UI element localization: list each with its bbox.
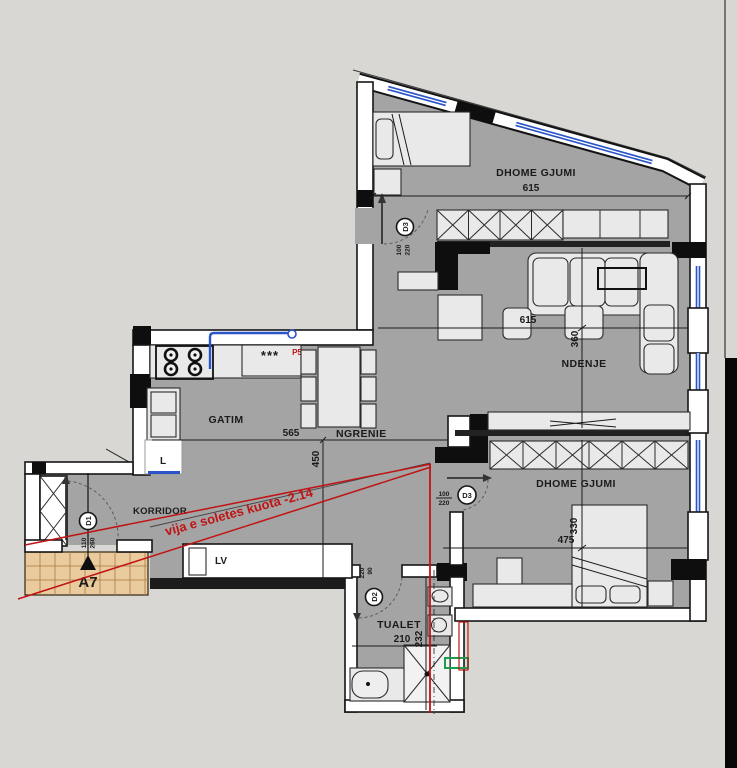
door-dim: 220	[439, 500, 450, 507]
door-dim: 220	[405, 244, 412, 255]
door-dim: 100	[396, 244, 403, 255]
shaft-label: L	[160, 456, 166, 467]
cabinet	[438, 295, 482, 340]
door-dim: 110	[81, 537, 88, 548]
corridor-furniture: LV	[183, 544, 352, 578]
dim-bedroom-bottom-width: 475	[558, 535, 575, 546]
dim-corridor-depth: 450	[311, 450, 322, 467]
pillow	[376, 119, 393, 159]
floor-plan-page: *** P5 L LV	[0, 0, 737, 768]
bedroom-bottom-label: DHOME GJUMI	[536, 478, 616, 490]
west-wall-top	[355, 82, 375, 330]
door-tag: D2	[370, 592, 379, 602]
bedroom-top-label: DHOME GJUMI	[496, 167, 576, 179]
corridor-south-wall	[150, 578, 355, 589]
door-dim: 90	[367, 567, 374, 575]
shelf	[563, 210, 668, 238]
floor-plan-canvas: *** P5 L LV	[0, 0, 737, 768]
dim-living-depth: 360	[570, 330, 581, 347]
door-tag: D3	[462, 491, 472, 500]
nightstand	[497, 558, 522, 585]
bathtub	[352, 671, 388, 698]
dim-toilet-width: 210	[394, 634, 411, 645]
dim-dining-width: 565	[283, 428, 300, 439]
door-tag: D3	[401, 222, 410, 232]
nightstand	[374, 169, 401, 195]
washing-machine-label: LV	[215, 556, 227, 567]
toilet-label: TUALET	[377, 619, 421, 631]
tv-cabinet	[488, 412, 690, 430]
dim-bedroom-top-width: 615	[523, 183, 540, 194]
small-table	[398, 272, 438, 290]
shaft-box	[40, 476, 67, 546]
south-wall-bedroom2	[455, 608, 705, 621]
kitchen-label: GATIM	[208, 414, 243, 426]
dresser	[473, 584, 572, 607]
dim-bedroom-bottom-depth: 330	[569, 517, 580, 534]
door-tag: D1	[84, 516, 93, 526]
living-label: NDENJE	[562, 358, 607, 370]
pillow	[576, 586, 606, 603]
dining-table	[318, 347, 360, 427]
door-dim: 220	[359, 567, 366, 578]
pillow	[610, 586, 640, 603]
door-dim: 260	[90, 537, 97, 548]
freezer-stars-label: ***	[261, 348, 279, 363]
lv-counter	[183, 544, 352, 578]
nightstand	[648, 581, 673, 606]
door-dim: 100	[439, 491, 450, 498]
dim-living-width: 615	[520, 315, 537, 326]
fridge	[147, 388, 180, 440]
dining-label: NGRENIE	[336, 428, 387, 440]
dim-toilet-depth: 232	[414, 630, 425, 647]
corridor-label: KORRIDOR	[133, 506, 187, 517]
